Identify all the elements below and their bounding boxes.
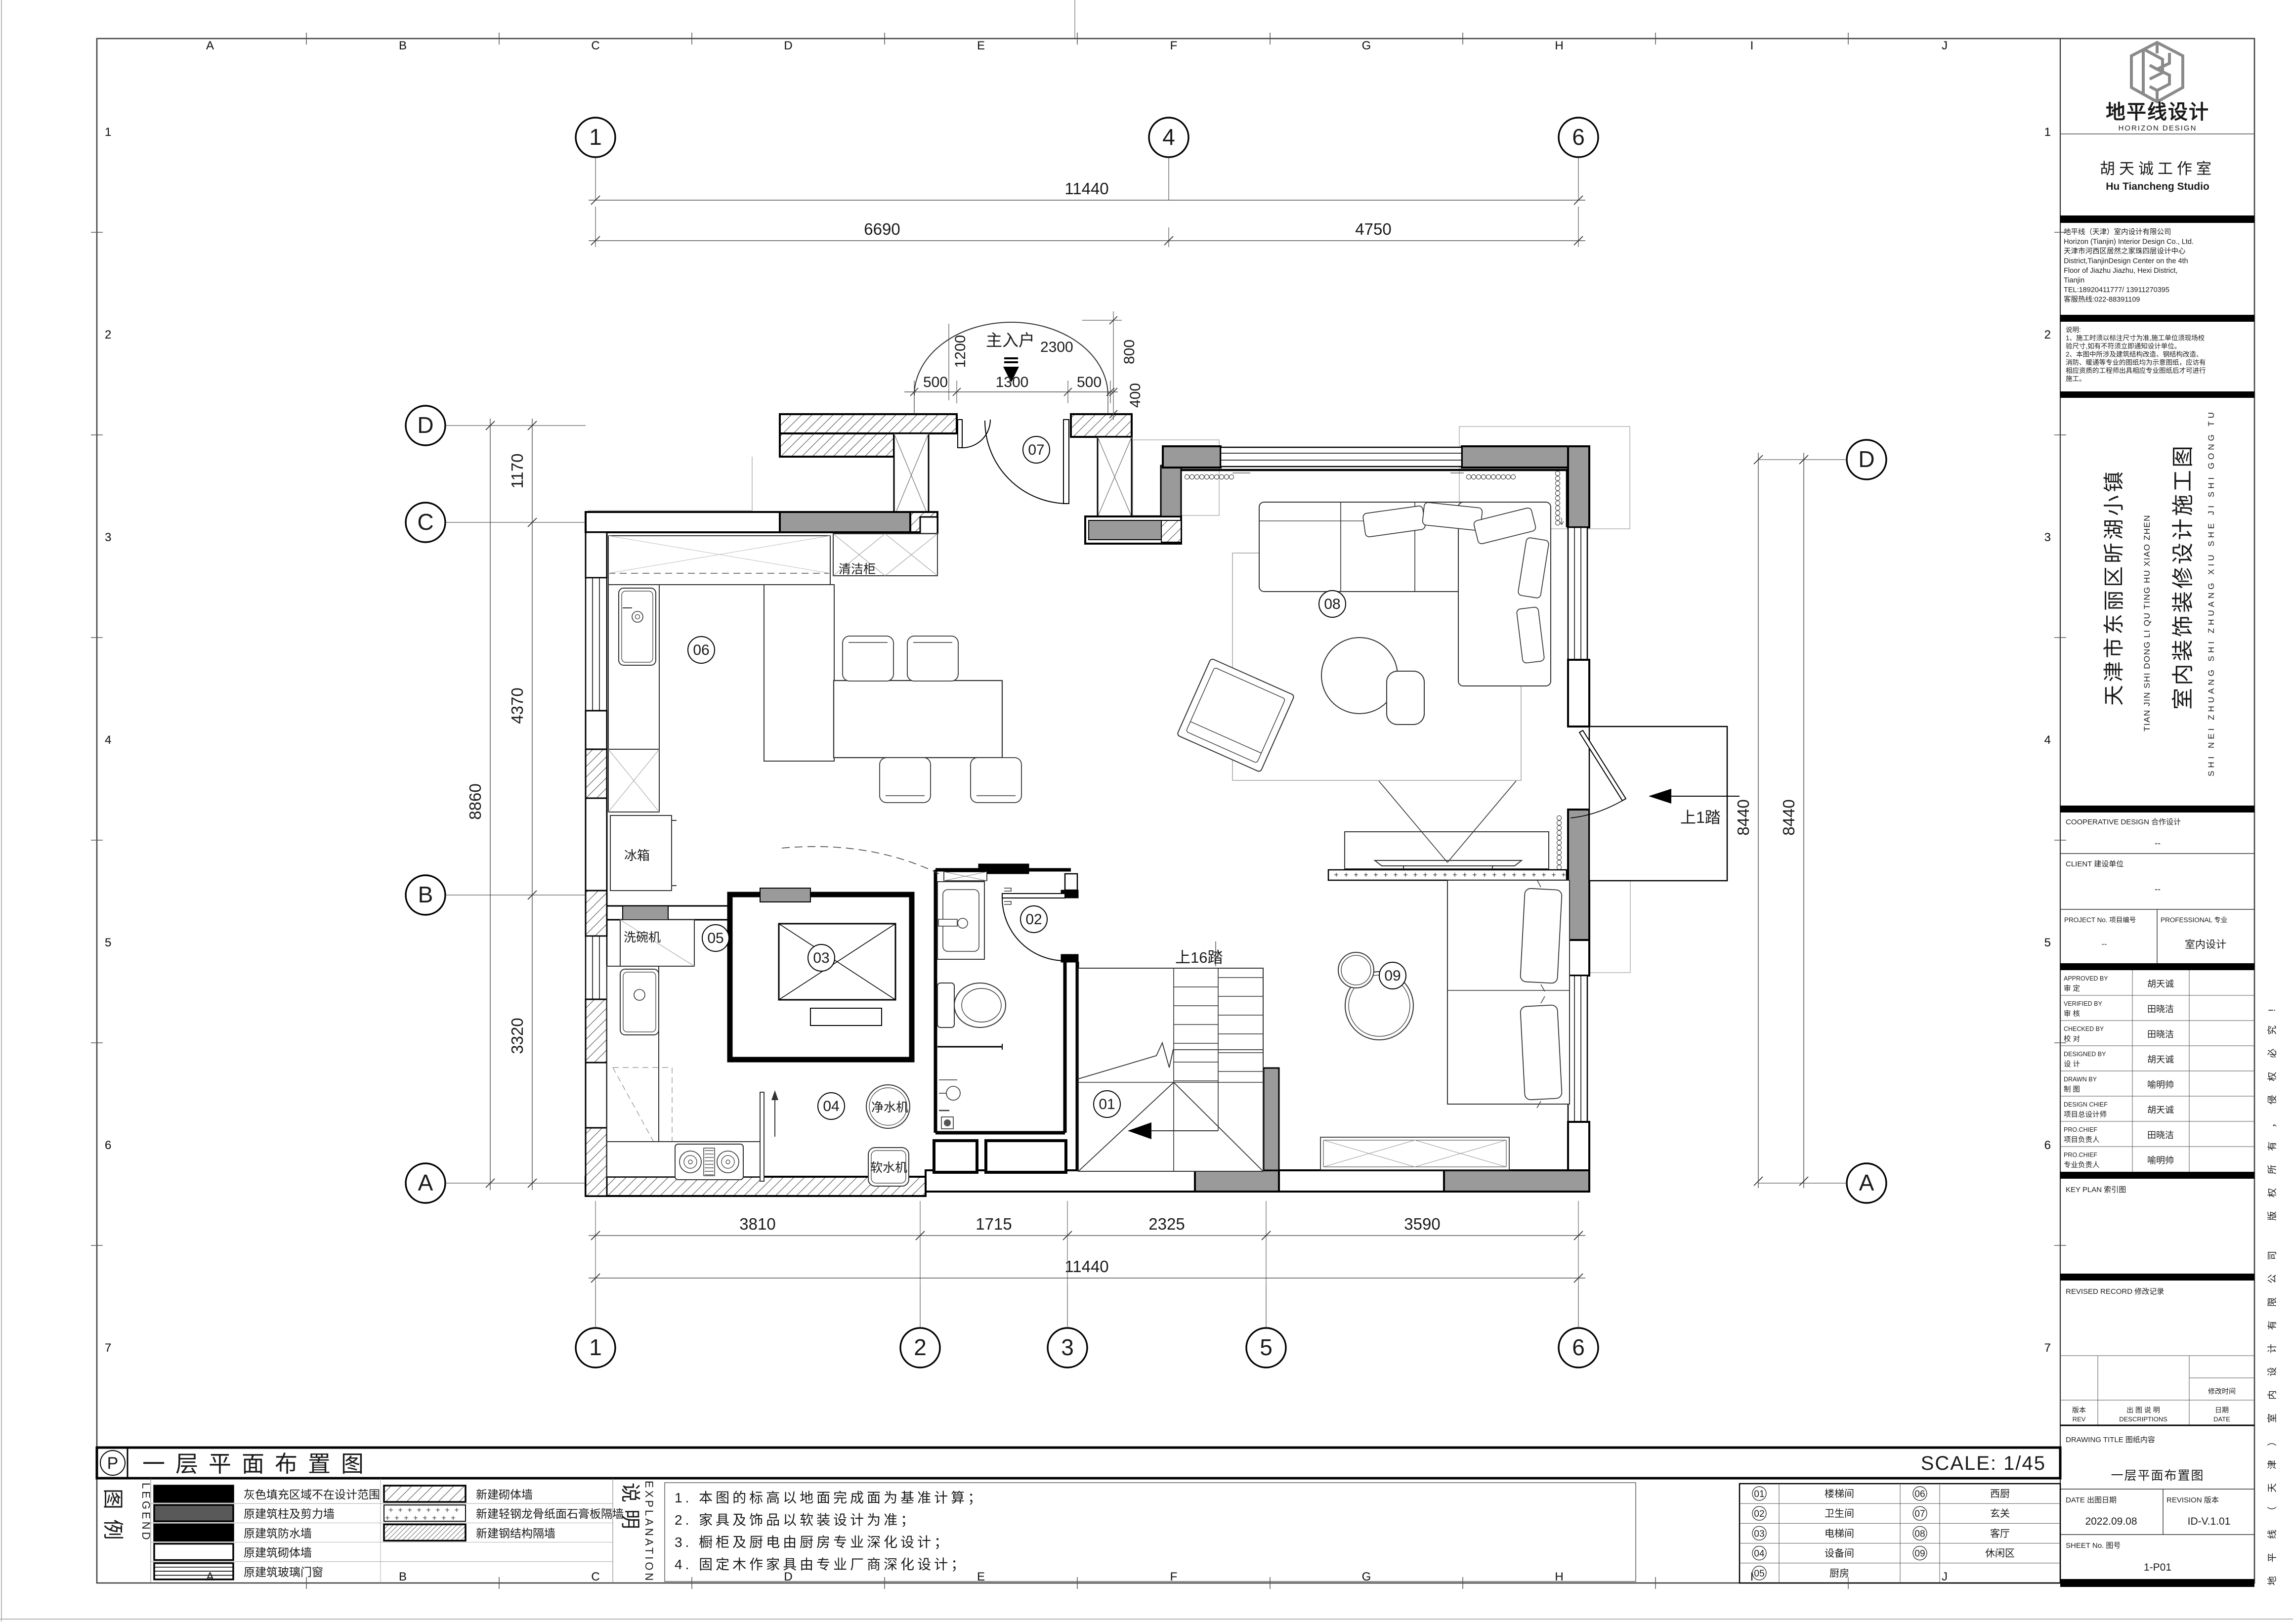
svg-text:3: 3 <box>105 531 111 544</box>
svg-text:休闲区: 休闲区 <box>1985 1548 2015 1559</box>
svg-text:06: 06 <box>693 642 709 658</box>
svg-text:1. 本图的标高以地面完成面为基准计算；: 1. 本图的标高以地面完成面为基准计算； <box>675 1490 984 1505</box>
svg-text:DATE: DATE <box>2213 1415 2230 1423</box>
svg-text:新建砌体墙: 新建砌体墙 <box>476 1488 533 1501</box>
svg-text:2: 2 <box>105 328 111 342</box>
svg-text:A: A <box>206 39 214 52</box>
svg-text:图例: 图例 <box>101 1489 125 1550</box>
svg-text:洗碗机: 洗碗机 <box>624 931 661 944</box>
svg-text:02: 02 <box>1025 911 1042 928</box>
svg-text:6: 6 <box>2044 1139 2051 1152</box>
svg-text:审 定: 审 定 <box>2064 984 2080 993</box>
svg-text:2: 2 <box>914 1334 927 1360</box>
svg-text:日期: 日期 <box>2215 1406 2229 1414</box>
svg-text:胡天诚: 胡天诚 <box>2147 1055 2174 1065</box>
svg-text:清洁柜: 清洁柜 <box>839 562 876 576</box>
svg-text:一层平面布置图: 一层平面布置图 <box>2111 1469 2204 1483</box>
svg-text:验尺寸,如有不符须立即通知设计单位。: 验尺寸,如有不符须立即通知设计单位。 <box>2066 342 2181 350</box>
svg-text:原建筑防水墙: 原建筑防水墙 <box>244 1527 312 1539</box>
svg-text:天津市河西区居然之家珠四层设计中心: 天津市河西区居然之家珠四层设计中心 <box>2064 247 2186 256</box>
svg-text:1715: 1715 <box>976 1215 1012 1233</box>
svg-text:版本: 版本 <box>2072 1406 2086 1414</box>
svg-text:专业负责人: 专业负责人 <box>2064 1161 2100 1169</box>
svg-text:District,TianjinDesign Center: District,TianjinDesign Center on the 4th <box>2064 257 2188 265</box>
svg-text:2、本图中所涉及建筑结构改造、钢结构改造、: 2、本图中所涉及建筑结构改造、钢结构改造、 <box>2066 351 2203 358</box>
svg-text:LEGEND: LEGEND <box>140 1483 152 1542</box>
svg-text:04: 04 <box>823 1098 839 1114</box>
svg-text:2300: 2300 <box>1040 339 1073 355</box>
svg-text:TIAN JIN SHI DONG LI QU TING H: TIAN JIN SHI DONG LI QU TING HU XIAO ZHE… <box>2142 514 2152 731</box>
svg-text:B: B <box>399 1570 407 1583</box>
svg-text:08: 08 <box>1914 1529 1925 1539</box>
svg-text:11440: 11440 <box>1064 179 1108 198</box>
svg-text:新建轻钢龙骨纸面石膏板隔墙: 新建轻钢龙骨纸面石膏板隔墙 <box>476 1507 624 1520</box>
svg-text:1170: 1170 <box>508 454 526 489</box>
svg-text:DRAWING TITLE 图纸内容: DRAWING TITLE 图纸内容 <box>2066 1436 2155 1444</box>
svg-text:说明: 说明 <box>619 1483 641 1536</box>
svg-text:灰色填充区域不在设计范围: 灰色填充区域不在设计范围 <box>244 1488 380 1501</box>
svg-text:出 图 说 明: 出 图 说 明 <box>2126 1406 2160 1414</box>
svg-text:3810: 3810 <box>739 1215 775 1233</box>
svg-text:4. 固定木作家具由专业厂商深化设计；: 4. 固定木作家具由专业厂商深化设计； <box>675 1557 968 1572</box>
svg-text:施工。: 施工。 <box>2066 375 2086 383</box>
svg-text:05: 05 <box>1754 1569 1764 1579</box>
svg-text:D: D <box>784 39 792 52</box>
svg-text:相应资质的工程师出具相应专业图纸后才可进行: 相应资质的工程师出具相应专业图纸后才可进行 <box>2066 367 2206 375</box>
svg-text:04: 04 <box>1754 1549 1765 1559</box>
svg-text:G: G <box>1362 39 1371 52</box>
svg-text:5: 5 <box>1260 1334 1273 1360</box>
svg-text:G: G <box>1362 1570 1371 1583</box>
svg-text:一层平面布置图: 一层平面布置图 <box>142 1451 374 1477</box>
svg-text:修改时间: 修改时间 <box>2208 1387 2236 1395</box>
svg-text:校 对: 校 对 <box>2064 1035 2080 1043</box>
svg-text:原建筑砌体墙: 原建筑砌体墙 <box>244 1546 312 1559</box>
svg-text:H: H <box>1555 1570 1563 1583</box>
svg-text:1: 1 <box>589 1334 602 1360</box>
svg-text:--: -- <box>2155 838 2161 848</box>
svg-text:PRO.CHIEF: PRO.CHIEF <box>2064 1126 2097 1133</box>
svg-text:客厅: 客厅 <box>1990 1528 2010 1539</box>
svg-text:田晓洁: 田晓洁 <box>2147 1130 2174 1140</box>
svg-text:1200: 1200 <box>952 335 969 368</box>
svg-text:楼梯间: 楼梯间 <box>1825 1488 1854 1499</box>
svg-text:11440: 11440 <box>1064 1257 1108 1276</box>
svg-text:4: 4 <box>2044 733 2051 747</box>
svg-text:B: B <box>418 882 433 907</box>
svg-text:SHEET No. 图号: SHEET No. 图号 <box>2066 1541 2121 1550</box>
svg-text:3: 3 <box>1061 1334 1074 1360</box>
svg-text:EXPLANATION: EXPLANATION <box>643 1481 655 1583</box>
svg-text:06: 06 <box>1914 1489 1925 1499</box>
svg-text:A: A <box>418 1170 433 1196</box>
svg-text:DESIGN CHIEF: DESIGN CHIEF <box>2064 1101 2108 1108</box>
svg-text:2325: 2325 <box>1148 1215 1185 1233</box>
svg-text:地平线设计: 地平线设计 <box>2106 101 2209 123</box>
svg-text:净水机: 净水机 <box>871 1101 908 1114</box>
svg-text:09: 09 <box>1914 1549 1925 1559</box>
svg-text:C: C <box>591 39 599 52</box>
svg-text:2022.09.08: 2022.09.08 <box>2085 1516 2137 1527</box>
svg-text:P: P <box>107 1454 119 1473</box>
svg-text:COOPERATIVE DESIGN 合作设计: COOPERATIVE DESIGN 合作设计 <box>2066 818 2181 826</box>
svg-text:室内装饰装修设计施工图: 室内装饰装修设计施工图 <box>2171 443 2195 710</box>
svg-text:07: 07 <box>1028 442 1044 458</box>
svg-text:5: 5 <box>2044 936 2051 949</box>
svg-text:6: 6 <box>105 1139 111 1152</box>
svg-text:KEY PLAN 索引图: KEY PLAN 索引图 <box>2066 1186 2126 1194</box>
svg-text:1: 1 <box>105 126 111 139</box>
svg-text:DESCRIPTIONS: DESCRIPTIONS <box>2119 1415 2167 1423</box>
svg-text:室内设计: 室内设计 <box>2185 939 2226 950</box>
svg-text:PROJECT No. 项目编号: PROJECT No. 项目编号 <box>2064 916 2136 924</box>
svg-text:2. 家具及饰品以软装设计为准；: 2. 家具及饰品以软装设计为准； <box>675 1512 917 1528</box>
svg-text:REVISED RECORD 修改记录: REVISED RECORD 修改记录 <box>2066 1287 2164 1296</box>
svg-text:E: E <box>977 1570 985 1583</box>
svg-text:6: 6 <box>1572 1334 1585 1360</box>
svg-text:3. 橱柜及厨电由厨房专业深化设计；: 3. 橱柜及厨电由厨房专业深化设计； <box>675 1535 951 1550</box>
svg-text:1: 1 <box>2044 126 2051 139</box>
svg-text:4750: 4750 <box>1355 220 1391 238</box>
svg-text:5: 5 <box>105 936 111 949</box>
svg-text:玄关: 玄关 <box>1990 1508 2010 1519</box>
svg-text:原建筑玻璃门窗: 原建筑玻璃门窗 <box>244 1566 323 1579</box>
svg-text:新建钢结构隔墙: 新建钢结构隔墙 <box>476 1527 555 1539</box>
svg-text:西厨: 西厨 <box>1990 1489 2010 1499</box>
svg-text:天津市东丽区昕湖小镇: 天津市东丽区昕湖小镇 <box>2102 469 2125 706</box>
svg-text:I: I <box>1750 1570 1754 1583</box>
svg-text:地平线（天津）室内设计有限公司: 地平线（天津）室内设计有限公司 <box>2064 228 2171 236</box>
svg-text:消防、暖通等专业的图纸均为示意图纸，应访有: 消防、暖通等专业的图纸均为示意图纸，应访有 <box>2066 358 2206 366</box>
svg-text:3320: 3320 <box>508 1018 526 1054</box>
svg-text:500: 500 <box>1077 374 1102 390</box>
svg-text:胡天诚工作室: 胡天诚工作室 <box>2100 160 2215 177</box>
svg-text:E: E <box>977 39 985 52</box>
svg-text:Horizon (Tianjin) Interior Des: Horizon (Tianjin) Interior Design Co., L… <box>2064 238 2194 246</box>
svg-text:J: J <box>1942 1570 1948 1583</box>
svg-text:原建筑柱及剪力墙: 原建筑柱及剪力墙 <box>244 1507 335 1520</box>
svg-text:田晓洁: 田晓洁 <box>2147 1029 2174 1039</box>
svg-text:01: 01 <box>1099 1096 1115 1112</box>
svg-text:ID-V.1.01: ID-V.1.01 <box>2188 1516 2231 1527</box>
svg-text:REVISION 版本: REVISION 版本 <box>2166 1496 2219 1504</box>
svg-text:1: 1 <box>589 124 602 150</box>
svg-text:F: F <box>1170 1570 1178 1583</box>
svg-text:09: 09 <box>1384 968 1401 984</box>
svg-text:SHI NEI ZHUANG SHI ZHUANG XIU: SHI NEI ZHUANG SHI ZHUANG XIU SHE JI SHI… <box>2207 409 2216 776</box>
svg-text:800: 800 <box>1121 340 1138 364</box>
svg-text:H: H <box>1555 39 1563 52</box>
svg-text:3: 3 <box>2044 531 2051 544</box>
svg-text:卫生间: 卫生间 <box>1825 1508 1854 1519</box>
svg-text:D: D <box>1858 446 1874 472</box>
svg-text:胡天诚: 胡天诚 <box>2147 1105 2174 1115</box>
svg-text:Hu Tiancheng Studio: Hu Tiancheng Studio <box>2106 181 2209 192</box>
svg-text:1300: 1300 <box>996 374 1029 390</box>
svg-text:A: A <box>206 1570 214 1583</box>
svg-text:Tianjin: Tianjin <box>2064 277 2084 285</box>
svg-text:喻明帅: 喻明帅 <box>2147 1155 2174 1165</box>
svg-text:冰箱: 冰箱 <box>624 848 650 863</box>
svg-text:05: 05 <box>707 930 723 946</box>
svg-text:APPROVED BY: APPROVED BY <box>2064 975 2108 982</box>
svg-text:Floor of Jiazhu Jiazhu, Hexi D: Floor of Jiazhu Jiazhu, Hexi District, <box>2064 267 2177 275</box>
svg-text:田晓洁: 田晓洁 <box>2147 1004 2174 1014</box>
svg-text:地平线（天津）室内设计有限公司 版权所有，侵权必究!: 地平线（天津）室内设计有限公司 版权所有，侵权必究! <box>2267 995 2278 1585</box>
svg-text:说明:: 说明: <box>2066 326 2081 334</box>
svg-text:I: I <box>1750 39 1754 52</box>
svg-text:08: 08 <box>1324 596 1340 612</box>
svg-text:PROFESSIONAL 专业: PROFESSIONAL 专业 <box>2161 916 2227 924</box>
svg-text:400: 400 <box>1127 383 1144 408</box>
svg-text:SCALE: 1/45: SCALE: 1/45 <box>1921 1453 2046 1474</box>
svg-text:03: 03 <box>813 950 829 966</box>
svg-text:7: 7 <box>105 1341 111 1355</box>
svg-text:500: 500 <box>923 374 948 390</box>
svg-text:3590: 3590 <box>1404 1215 1440 1233</box>
svg-text:项目负责人: 项目负责人 <box>2064 1136 2100 1144</box>
svg-text:2: 2 <box>2044 328 2051 342</box>
svg-text:客服热线:022-88391109: 客服热线:022-88391109 <box>2064 296 2140 304</box>
svg-text:C: C <box>591 1570 599 1583</box>
svg-text:CHECKED BY: CHECKED BY <box>2064 1026 2104 1032</box>
svg-text:D: D <box>417 412 433 438</box>
svg-text:01: 01 <box>1754 1489 1764 1499</box>
svg-text:8860: 8860 <box>466 783 484 819</box>
svg-text:胡天诚: 胡天诚 <box>2147 979 2174 989</box>
svg-text:设 计: 设 计 <box>2064 1060 2080 1068</box>
svg-text:7: 7 <box>2044 1341 2051 1355</box>
svg-text:6690: 6690 <box>864 220 900 238</box>
svg-text:制 图: 制 图 <box>2064 1085 2080 1094</box>
svg-text:REV: REV <box>2073 1415 2086 1423</box>
svg-text:B: B <box>399 39 407 52</box>
svg-text:电梯间: 电梯间 <box>1825 1528 1854 1539</box>
svg-text:1-P01: 1-P01 <box>2144 1562 2171 1573</box>
svg-text:项目总设计师: 项目总设计师 <box>2064 1111 2107 1119</box>
svg-text:1、施工时须以标注尺寸为准,施工单位须现场校: 1、施工时须以标注尺寸为准,施工单位须现场校 <box>2066 334 2205 342</box>
svg-text:PRO.CHIEF: PRO.CHIEF <box>2064 1152 2097 1158</box>
svg-text:主入户: 主入户 <box>986 331 1035 349</box>
svg-text:8440: 8440 <box>1734 799 1752 835</box>
svg-text:--: -- <box>2155 884 2161 894</box>
svg-text:DATE 出图日期: DATE 出图日期 <box>2066 1496 2117 1504</box>
svg-text:02: 02 <box>1754 1509 1764 1519</box>
svg-text:J: J <box>1942 39 1948 52</box>
svg-text:DESIGNED BY: DESIGNED BY <box>2064 1051 2106 1058</box>
svg-text:C: C <box>417 509 433 535</box>
svg-text:上1踏: 上1踏 <box>1680 809 1721 826</box>
svg-text:设备间: 设备间 <box>1825 1548 1854 1559</box>
svg-text:审 核: 审 核 <box>2064 1010 2080 1018</box>
svg-text:DRAWN BY: DRAWN BY <box>2064 1076 2097 1083</box>
svg-text:HORIZON DESIGN: HORIZON DESIGN <box>2119 124 2197 132</box>
svg-text:D: D <box>784 1570 792 1583</box>
svg-text:A: A <box>1859 1170 1874 1196</box>
svg-text:TEL:18920411777/ 13911270395: TEL:18920411777/ 13911270395 <box>2064 286 2169 294</box>
svg-text:4: 4 <box>1162 124 1175 150</box>
svg-text:4370: 4370 <box>508 687 526 724</box>
svg-text:07: 07 <box>1914 1509 1925 1519</box>
svg-text:8440: 8440 <box>1780 799 1798 835</box>
svg-text:6: 6 <box>1572 124 1585 150</box>
svg-text:软水机: 软水机 <box>870 1161 907 1175</box>
svg-text:4: 4 <box>105 733 111 747</box>
svg-text:F: F <box>1170 39 1178 52</box>
svg-text:VERIFIED BY: VERIFIED BY <box>2064 1000 2102 1007</box>
svg-text:03: 03 <box>1754 1529 1764 1539</box>
svg-text:CLIENT 建设单位: CLIENT 建设单位 <box>2066 860 2123 868</box>
svg-text:喻明帅: 喻明帅 <box>2147 1080 2174 1090</box>
svg-text:--: -- <box>2102 940 2107 948</box>
svg-text:厨房: 厨房 <box>1829 1568 1849 1579</box>
